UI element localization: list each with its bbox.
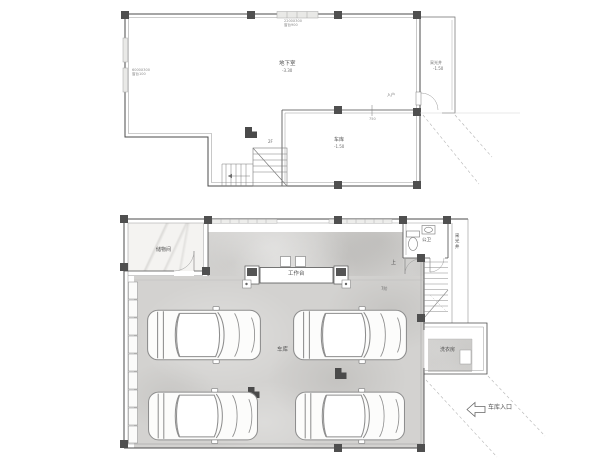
shelf-icon [129,282,138,443]
garage-label: 车库 [277,347,288,353]
column-mark-icon [335,368,347,379]
stairs-up-label: 上 [391,261,396,267]
upper-plan [121,11,520,189]
floor-plan-canvas: 地下室 -3.30 采光井 -1.50 车库 -1.50 2F 入户 750 2… [0,0,600,462]
window-note-line: 窗台900 [284,23,302,27]
lightwell-label-upper: 采光井 [430,61,442,66]
entry-note-label: 入户 [387,93,395,98]
stool-icon [296,257,306,267]
dim-note-label: 750 [369,117,376,121]
window-note-left: 6000X300 窗台100 [132,68,150,76]
garage-area-label: 车库 [334,138,344,144]
stairs-icon [222,148,287,186]
car-icon [149,389,258,444]
plan-linework [0,0,600,462]
bathroom-label: 公卫 [422,238,431,243]
stool-icon [281,257,291,267]
lower-plan [120,215,545,457]
lightwell-level-label: -1.50 [433,67,443,72]
entrance-arrow-icon [467,403,485,417]
workbench-label: 工作台 [288,271,305,277]
car-icon [148,307,261,364]
car-icon [296,389,405,444]
door-icon [416,92,438,110]
laundry-label: 洗衣房 [440,348,455,354]
column-icon [121,11,421,189]
stairs-note-label: 2F [268,140,273,145]
entrance-label: 车库入口 [488,405,512,412]
sink-icon [422,226,435,235]
lightwell-label-lower: 采光井 [454,233,459,250]
storage-label: 储物间 [156,248,171,254]
column-mark-icon [245,127,257,138]
stairs-icon [424,262,448,318]
car-icon [294,307,407,364]
window-icon [212,219,392,223]
cars [148,307,407,444]
window-note-top: 2200X300 窗台900 [284,19,302,27]
stairs-steps-label: 7阶 [381,287,388,292]
garage-area-level: -1.50 [334,145,344,150]
appliance-icon [460,350,471,364]
basement-room-label: 地下室 [279,61,296,67]
toilet-icon [407,231,420,251]
basement-level-label: -3.30 [282,69,292,74]
laundry-room [424,323,487,374]
window-note-line: 窗台100 [132,72,150,76]
workbench [260,257,333,284]
